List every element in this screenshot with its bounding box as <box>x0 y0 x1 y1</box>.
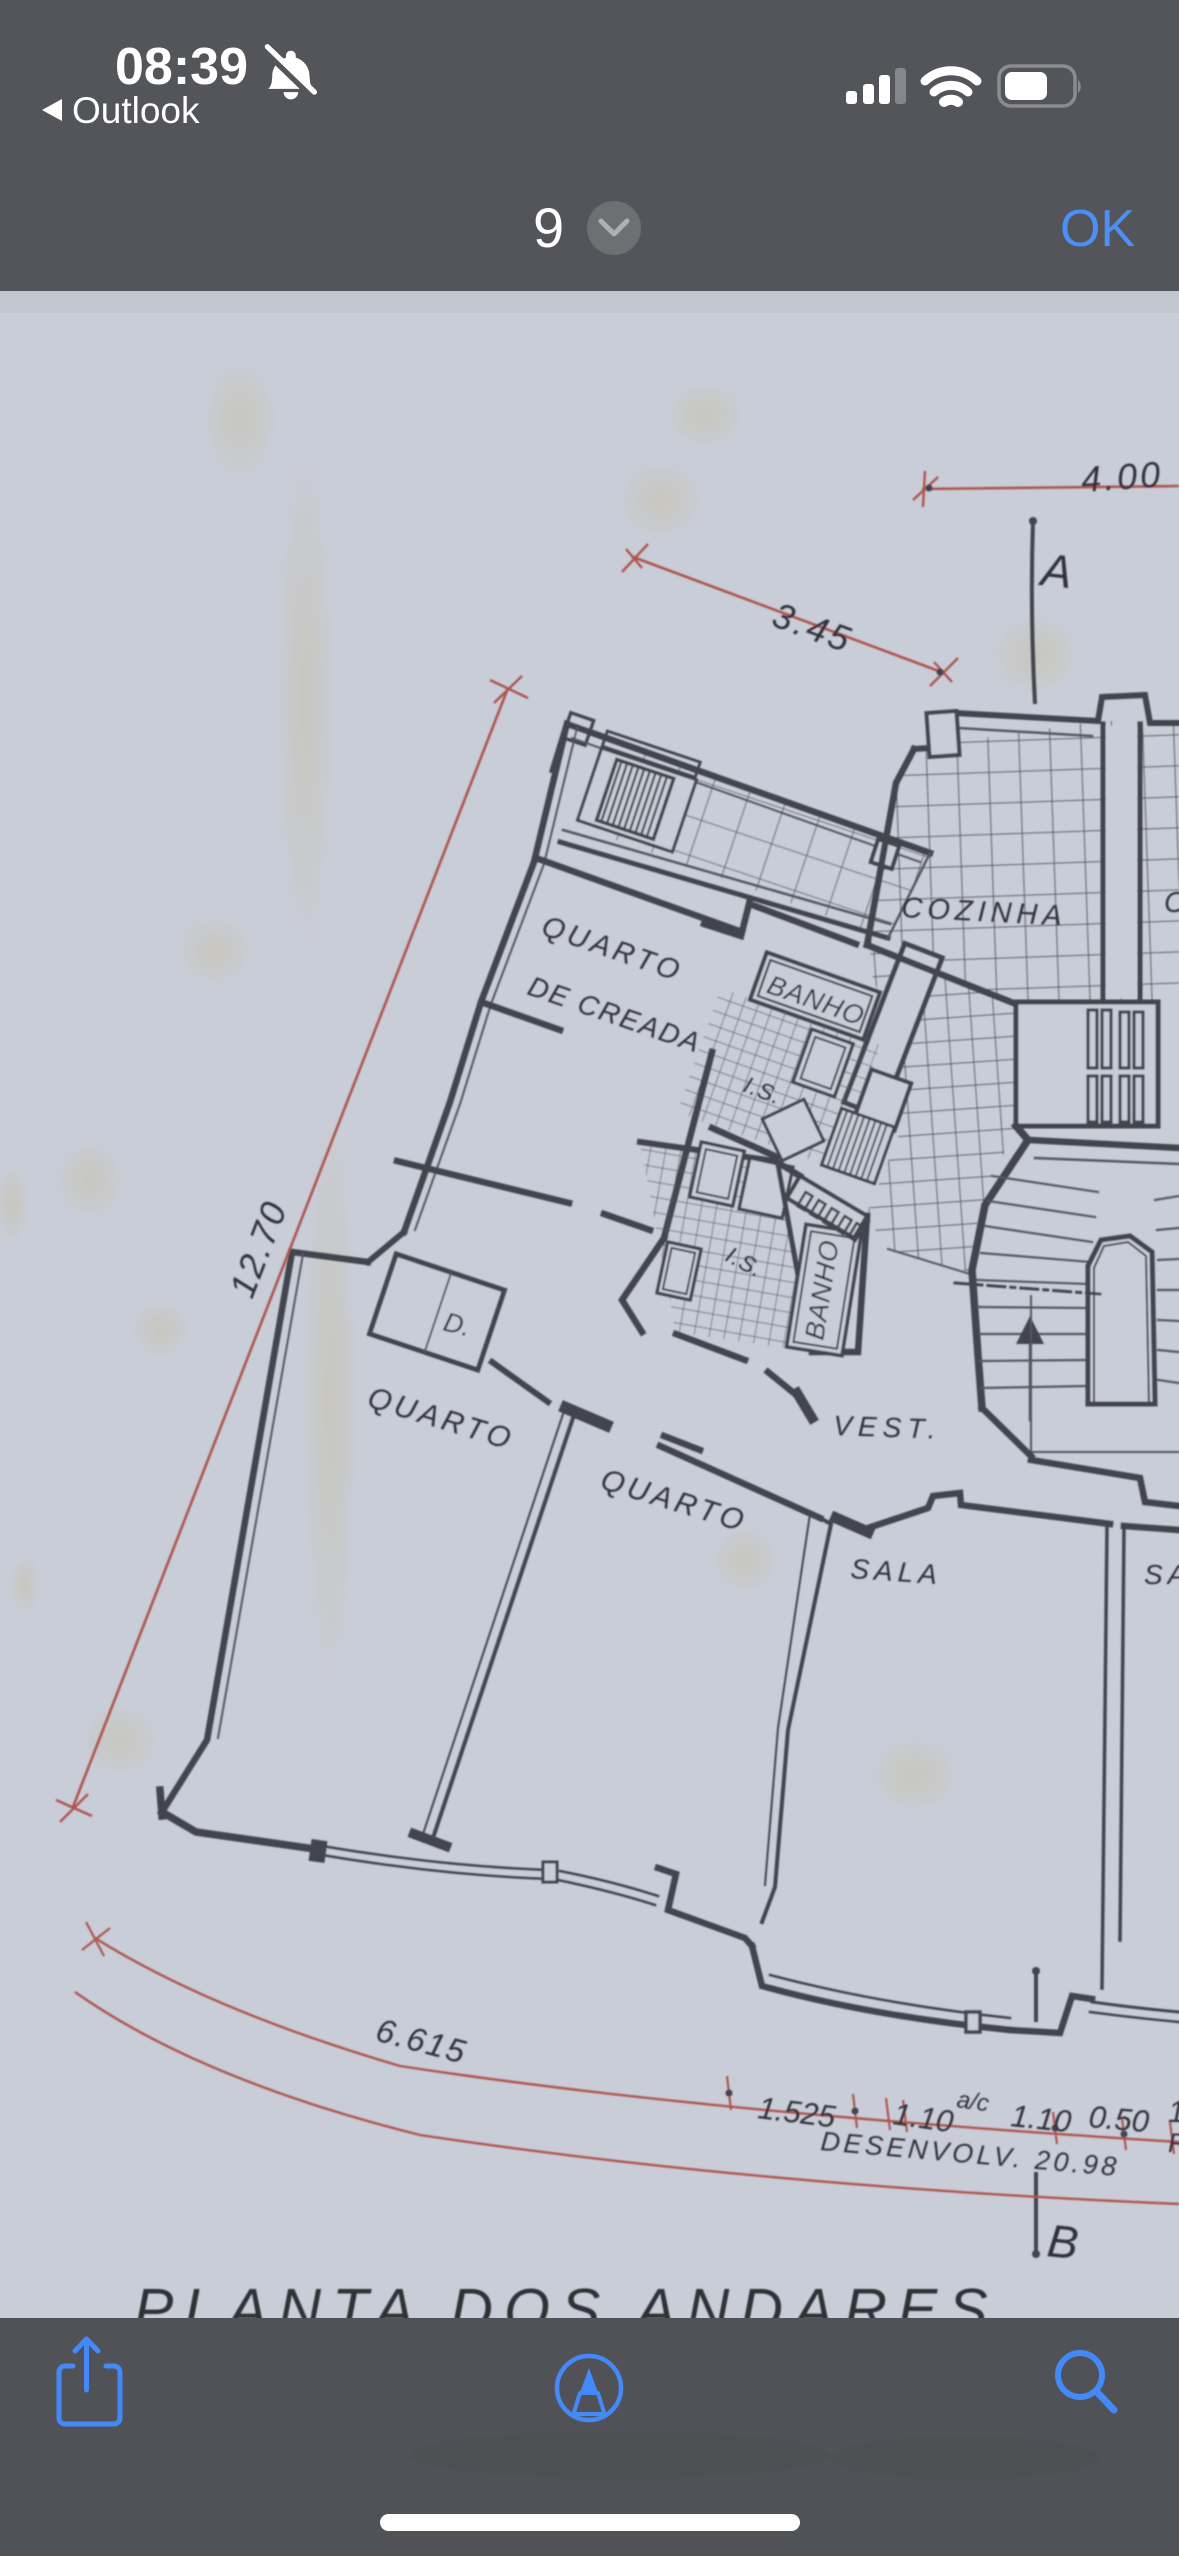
svg-text:R: R <box>1168 2128 1179 2158</box>
svg-text:a/c: a/c <box>955 2086 990 2117</box>
svg-text:9: 9 <box>533 196 564 259</box>
svg-text:OK: OK <box>1060 200 1135 258</box>
svg-text:Outlook: Outlook <box>72 90 200 131</box>
svg-text:1.10: 1.10 <box>1009 2098 1073 2139</box>
svg-text:SA: SA <box>1144 1559 1179 1590</box>
svg-text:B: B <box>1045 2214 1081 2269</box>
svg-text:1: 1 <box>1168 2094 1179 2129</box>
svg-text:SALA: SALA <box>850 1553 944 1590</box>
svg-text:4.00: 4.00 <box>1080 453 1165 500</box>
svg-text:0.50: 0.50 <box>1087 2099 1150 2139</box>
svg-text:C: C <box>1164 887 1179 919</box>
svg-text:08:39: 08:39 <box>115 38 248 96</box>
svg-text:VEST.: VEST. <box>833 1410 942 1445</box>
